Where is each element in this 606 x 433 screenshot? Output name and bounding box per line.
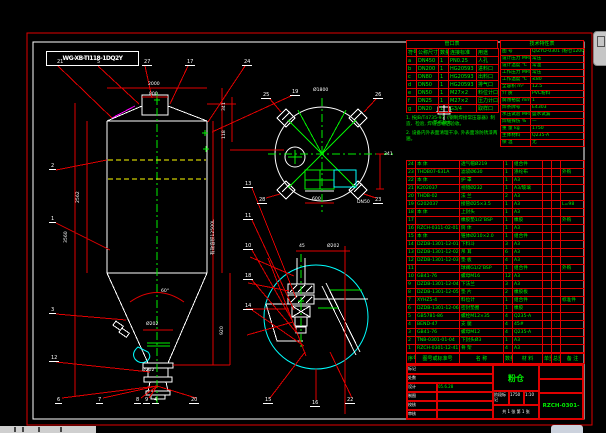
tech-characteristics-table: 图 号Q/ZYD-0301 (粉仓12000L)设计压力 MPa常压设计温度 ℃… [500, 48, 585, 147]
table-cell: RZCH-0311-02-01 [416, 225, 460, 233]
table-cell: DZDB-1301-12-03 [416, 257, 460, 265]
detail-geometry [266, 258, 368, 355]
table-cell: 料位计 [460, 297, 504, 305]
table-cell: 12 [504, 273, 513, 281]
item-balloon: 6 [55, 398, 62, 404]
table-cell: 1 [439, 105, 449, 113]
item-balloon: 13 [243, 182, 253, 188]
table-cell [561, 249, 585, 257]
table-cell: 16 [407, 225, 416, 233]
item-balloon: 16 [310, 401, 320, 407]
dimension-text: 有效容积12500L [211, 219, 216, 255]
table-cell [552, 273, 561, 281]
nozzle-table: 符号公称尺寸数量连接标准用途aDN4501PN0.25人孔bDN2001HG20… [406, 48, 499, 113]
table-cell: 公称尺寸 [417, 49, 439, 57]
table-cell: 1 [504, 209, 513, 217]
table-cell: 1 [504, 217, 513, 225]
table-cell: 1 [504, 201, 513, 209]
table-cell: 组合件 [513, 233, 543, 241]
item-balloon: 15 [263, 398, 273, 404]
table-cell: 1 [504, 177, 513, 185]
statusbar-fragment-bottom-left[interactable] [0, 426, 96, 433]
table-cell: 1 [407, 345, 416, 353]
table-cell [561, 257, 585, 265]
table-cell: 3 [407, 329, 416, 337]
table-cell: g [407, 105, 417, 113]
table-cell: 1 [439, 65, 449, 73]
dimension-text: 920 [220, 326, 225, 335]
table-cell: 设计温度 ℃ [501, 63, 531, 70]
table-cell [543, 249, 552, 257]
table-cell: 9 [407, 281, 416, 289]
table-cell: 24 [407, 161, 416, 169]
table-cell: 图号或标准号 [416, 354, 460, 364]
table-cell: 出料口 [477, 73, 499, 81]
table-cell: 螺母M12 [460, 329, 504, 337]
table-cell: 21 [407, 185, 416, 193]
table-cell: 球阀G1/2″BSP [460, 265, 504, 273]
table-cell [543, 337, 552, 345]
item-balloon: 17 [185, 60, 195, 66]
table-cell [543, 233, 552, 241]
table-cell [561, 177, 585, 185]
table-cell [543, 177, 552, 185]
bill-of-materials: 24本 体透气帽Ø2191组合件23THDB07-631A滤袋Ø6301涤纶布外… [406, 160, 585, 353]
tb-row [437, 392, 493, 401]
table-cell [552, 169, 561, 177]
table-cell: 骨 架 [460, 345, 504, 353]
table-cell [552, 337, 561, 345]
table-cell: 序号 [407, 354, 416, 364]
table-cell: 外购 [561, 265, 585, 273]
table-cell: 材 料 [513, 354, 543, 364]
table-cell: Q235-A [531, 133, 585, 140]
table-cell [561, 281, 585, 289]
table-cell: 橡胶 [513, 305, 543, 313]
table-cell: G3/4 [449, 105, 477, 113]
table-cell: 焊条牌号 [501, 105, 531, 112]
table-cell: DZDB-1301-12-05 [416, 289, 460, 297]
table-cell: GB41-76 [416, 329, 460, 337]
bom-header-row: 序号图号或标准号名 称数量材 料单重总重备 注 [406, 353, 585, 364]
table-cell: A3 [513, 241, 543, 249]
dimension-text: 2562 [76, 191, 81, 203]
table-cell: 透气帽Ø219 [460, 161, 504, 169]
table-cell: 橡胶 [513, 217, 543, 225]
tb-stage: 阶段标记 [493, 391, 509, 405]
table-cell: 1750 [531, 126, 585, 133]
item-balloon: 28 [257, 198, 267, 204]
cad-viewer-screen: WG-XB-TI118-1DQ2Y 管口表 符号公称尺寸数量连接标准用途aDN4… [0, 0, 606, 433]
dimension-text: Ø202 [146, 322, 158, 327]
table-cell [543, 201, 552, 209]
item-balloon: 27 [142, 60, 152, 66]
table-cell: 视镜Ø232 [460, 185, 504, 193]
table-cell: 数量 [439, 49, 449, 57]
table-cell [552, 305, 561, 313]
table-cell [561, 225, 585, 233]
item-balloon: 19 [290, 90, 300, 96]
table-cell: 常压 [531, 56, 585, 63]
table-cell [561, 233, 585, 241]
table-cell: 20 [407, 193, 416, 201]
table-cell [561, 321, 585, 329]
table-cell: 4 [407, 321, 416, 329]
table-cell [543, 297, 552, 305]
item-balloon: 9 [143, 398, 150, 404]
table-cell [552, 257, 561, 265]
dimension-text: Ø202 [142, 368, 154, 373]
table-cell [543, 313, 552, 321]
table-cell: 人孔 [477, 57, 499, 65]
table-cell: 橡胶板 [513, 289, 543, 297]
table-cell: M27×2 [449, 89, 477, 97]
table-cell: 3 [504, 281, 513, 289]
table-cell [543, 209, 552, 217]
table-cell: 1 [504, 337, 513, 345]
table-cell: 1 [504, 305, 513, 313]
tb-empty [539, 365, 583, 379]
table-cell: 2 [504, 193, 513, 201]
table-cell [552, 185, 561, 193]
table-cell: A3 [513, 345, 543, 353]
table-cell: 常温 [531, 63, 585, 70]
table-cell: 法 兰 [460, 193, 504, 201]
dimension-text: Ø1800 [313, 88, 328, 93]
table-cell: 密封垫圈 [460, 305, 504, 313]
table-cell: 1 [439, 73, 449, 81]
table-cell: 组合件 [513, 297, 543, 305]
table-cell: 1 [531, 98, 585, 105]
dimension-text: 45 [299, 244, 305, 249]
detail-dimensions [246, 246, 350, 414]
table-cell: 全容积 m³ [501, 84, 531, 91]
table-cell: DZDB-1301-12-01 [416, 241, 460, 249]
table-cell [552, 329, 561, 337]
table-cell [543, 305, 552, 313]
tb-sheet-count: 共 1 张 第 1 张 [493, 405, 539, 419]
table-cell: 上封头 [460, 209, 504, 217]
table-cell [552, 265, 561, 273]
item-balloon: 8 [134, 398, 141, 404]
table-cell: 单重 [543, 354, 552, 364]
table-cell: Q235-A [513, 329, 543, 337]
table-cell [552, 177, 561, 185]
table-cell [543, 265, 552, 273]
tb-row: 审核 [407, 410, 437, 419]
table-cell [543, 281, 552, 289]
table-cell: 保 温 [501, 140, 531, 147]
table-cell: TNB-0301-01-04 [416, 337, 460, 345]
table-cell: 18 [407, 209, 416, 217]
table-cell: A3 [513, 337, 543, 345]
table-cell: 1 [439, 97, 449, 105]
table-cell [416, 217, 460, 225]
table-cell [543, 321, 552, 329]
table-cell: A3 [513, 177, 543, 185]
table-cell: A3 [513, 193, 543, 201]
table-cell [561, 313, 585, 321]
leader-lines [56, 66, 352, 400]
table-cell [561, 337, 585, 345]
table-cell: 外购 [561, 169, 585, 177]
table-cell: 排气口 [477, 81, 499, 89]
table-cell: 15 [407, 233, 416, 241]
table-cell: DZDB-1301-12-04 [416, 281, 460, 289]
table-cell: f [407, 97, 417, 105]
table-cell [561, 241, 585, 249]
tb-row [437, 410, 493, 419]
dimension-text: 节点放大 [433, 121, 451, 126]
item-balloon: 5 [95, 60, 102, 66]
table-cell: 1 [504, 265, 513, 273]
table-cell: 盛水试漏 [531, 112, 585, 119]
dimension-text: 60° [161, 289, 169, 294]
table-cell: 护 罩 [460, 177, 504, 185]
table-cell: 介 质 [501, 91, 531, 98]
table-cell: HG20593 [449, 73, 477, 81]
table-cell: 19 [407, 201, 416, 209]
table-cell: 6 [504, 249, 513, 257]
table-cell: 23 [407, 169, 416, 177]
item-balloon: 22 [345, 398, 355, 404]
table-cell: 6 [407, 305, 416, 313]
note-line: 1. 按JB/T4735-97《钢制焊接常压容器》制造、检验, 焊缝合格后验收。 [406, 116, 502, 128]
table-cell: 螺母M16 [460, 273, 504, 281]
table-cell [552, 161, 561, 169]
table-cell [543, 329, 552, 337]
table-cell: 组合件 [513, 265, 543, 273]
table-cell: DN200 [417, 65, 439, 73]
item-balloon: 14 [243, 304, 253, 310]
table-cell: 锥体Ø210×2.0 [460, 233, 504, 241]
table-cell: 连接标准 [449, 49, 477, 57]
table-cell: 3 [504, 241, 513, 249]
item-balloon: 25 [261, 93, 271, 99]
table-cell: 垫 片 [460, 289, 504, 297]
dimension-text: 600 [312, 197, 321, 202]
item-balloon: 4 [152, 398, 159, 404]
table-cell: 4 [504, 329, 513, 337]
item-balloon: 12 [49, 356, 59, 362]
item-balloon: 26 [373, 93, 383, 99]
table-cell [543, 161, 552, 169]
table-cell: HG20593 [449, 65, 477, 73]
table-cell: 支 腿 [460, 321, 504, 329]
table-cell: A3 [513, 225, 543, 233]
table-cell: Q/ZYD-0301 (粉仓12000L) [531, 49, 585, 56]
table-cell: 8 [407, 289, 416, 297]
table-cell: 45# [513, 321, 543, 329]
item-balloon: 20 [189, 398, 199, 404]
table-cell: DZDB-1301-12-02 [416, 249, 460, 257]
table-cell [543, 345, 552, 353]
table-cell: 本 体 [416, 209, 460, 217]
table-cell: 主体材料 [501, 133, 531, 140]
table-cell [543, 169, 552, 177]
table-cell [552, 297, 561, 305]
table-cell: 17 [407, 217, 416, 225]
table-cell: THDB-02 [416, 193, 460, 201]
general-notes: 1. 按JB/T4735-97《钢制焊接常压容器》制造、检验, 焊缝合格后验收。… [406, 116, 502, 146]
table-cell [561, 329, 585, 337]
tb-row: 制图 [407, 392, 437, 401]
table-cell: 1 [504, 161, 513, 169]
front-view-centerline [147, 92, 209, 403]
table-cell: 12 [407, 257, 416, 265]
table-cell: A3 [513, 201, 543, 209]
tb-row [437, 401, 493, 410]
table-cell: 12.5 [531, 84, 585, 91]
dimension-text: 341 [384, 152, 393, 157]
table-cell: DN50 [417, 89, 439, 97]
table-cell [552, 313, 561, 321]
table-cell [561, 193, 585, 201]
table-cell: e [407, 89, 417, 97]
item-balloon: 21 [55, 60, 65, 66]
table-cell: 1 [504, 169, 513, 177]
table-cell: GB5781-86 [416, 313, 460, 321]
table-cell: 1 [439, 57, 449, 65]
tb-scale: 1:10 [524, 391, 539, 405]
dimension-text: DN50 [357, 200, 370, 205]
table-cell: DN25 [417, 97, 439, 105]
table-cell: 本 体 [416, 177, 460, 185]
drawing-number: RZCH-0301-02-11 [539, 393, 583, 419]
revision-cloud [134, 347, 150, 363]
table-cell: 吊 耳 [460, 249, 504, 257]
item-balloon: 10 [243, 244, 253, 250]
table-cell: 腐蚀裕度 mm [501, 98, 531, 105]
scrollbar-fragment-right[interactable] [593, 31, 606, 66]
dimension-text: Ø202 [327, 244, 339, 249]
table-cell: 14 [407, 241, 416, 249]
table-cell: 11 [407, 265, 416, 273]
table-cell: 重 量 kg [501, 126, 531, 133]
table-cell: Q235-A [513, 313, 543, 321]
dimension-text: 3560 [64, 231, 69, 243]
table-cell: 设计压力 MPa [501, 56, 531, 63]
table-cell: 22 [407, 177, 416, 185]
table-cell [561, 345, 585, 353]
table-cell [552, 193, 561, 201]
table-cell: G202037 [416, 201, 460, 209]
table-cell [552, 233, 561, 241]
detail-circle [264, 265, 368, 369]
tb-date: 05.6.28 [437, 383, 493, 392]
table-cell: BEND-47 [416, 321, 460, 329]
dimension-text: 2000 [148, 82, 160, 87]
table-cell: 10 [407, 273, 416, 281]
table-cell: GB41-76 [416, 273, 460, 281]
table-cell: 压力计口 [477, 97, 499, 105]
table-cell: 标准件 [561, 297, 585, 305]
table-cell: 螺栓M12×35 [460, 313, 504, 321]
table-cell: DN20 [417, 105, 439, 113]
table-cell: 下料斗 [460, 241, 504, 249]
tb-empty [539, 379, 583, 393]
table-cell [552, 345, 561, 353]
item-balloon: 18 [243, 274, 253, 280]
table-cell: L=98 [561, 201, 585, 209]
table-cell: 接管Ø25×3.5 [460, 201, 504, 209]
table-cell: 1 [504, 297, 513, 305]
table-cell: 水压试验 MPa [501, 112, 531, 119]
table-cell [552, 281, 561, 289]
tb-row: 标记 [407, 365, 493, 374]
table-cell: 1 [439, 89, 449, 97]
table-cell: 下封头Ø3 [460, 337, 504, 345]
table-cell [552, 289, 561, 297]
table-cell: 数量 [504, 354, 513, 364]
table-cell: 1 [439, 81, 449, 89]
table-cell [552, 201, 561, 209]
table-cell: E4303 [531, 105, 585, 112]
table-cell: — [531, 119, 585, 126]
table-cell: ≤80 [531, 77, 585, 84]
dimension-text: 800 [149, 92, 158, 97]
table-cell: THDB07-631A [416, 169, 460, 177]
table-cell: 取样口 [477, 105, 499, 113]
item-balloon: 1 [49, 217, 56, 223]
table-cell: c [407, 73, 417, 81]
table-cell: 进料口 [477, 65, 499, 73]
table-cell: 备 注 [561, 354, 585, 364]
equipment-title: 粉仓12000L [493, 365, 539, 391]
item-balloon: 3 [49, 308, 56, 314]
table-cell: 筒 体 [460, 225, 504, 233]
table-cell: M27×2 [449, 97, 477, 105]
table-cell: A3 [513, 281, 543, 289]
table-cell: 橡胶垫1/2″BSP [460, 217, 504, 225]
table-cell: A3 [513, 273, 543, 281]
table-cell: DN80 [417, 73, 439, 81]
dimension-text: 341 [222, 102, 227, 111]
table-cell [543, 217, 552, 225]
table-cell: 组合件 [513, 161, 543, 169]
table-cell: 本 体 [416, 233, 460, 241]
tb-mass: 1750 [509, 391, 524, 405]
aux-line-magenta [112, 106, 135, 118]
table-cell: 1 [504, 225, 513, 233]
table-cell: 本 体 [416, 161, 460, 169]
table-cell: PN0.25 [449, 57, 477, 65]
scrollbar-fragment-bottom[interactable] [551, 425, 583, 433]
table-cell: 4 [504, 257, 513, 265]
table-cell: 滤袋Ø630 [460, 169, 504, 177]
table-cell: 2 [504, 289, 513, 297]
table-cell: 工作压力 MPa [501, 70, 531, 77]
table-cell: 2 [407, 337, 416, 345]
table-cell: 无 [531, 140, 585, 147]
table-cell [561, 185, 585, 193]
table-cell: b [407, 65, 417, 73]
table-cell: 料位计口 [477, 89, 499, 97]
table-cell: 总重 [552, 354, 561, 364]
item-balloon: 24 [242, 60, 252, 66]
table-cell: PVC粉料 [531, 91, 585, 98]
table-cell: 外购 [561, 217, 585, 225]
table-cell [552, 217, 561, 225]
item-balloon: 7 [96, 398, 103, 404]
table-cell [543, 273, 552, 281]
table-cell: 7 [407, 297, 416, 305]
table-cell: A3 [513, 209, 543, 217]
table-cell: d [407, 81, 417, 89]
note-line: 2. 设备内外表面清理干净, 外表面涂防锈漆两遍。 [406, 131, 502, 143]
table-cell: 4 [504, 313, 513, 321]
table-cell: 下法兰 [460, 281, 504, 289]
